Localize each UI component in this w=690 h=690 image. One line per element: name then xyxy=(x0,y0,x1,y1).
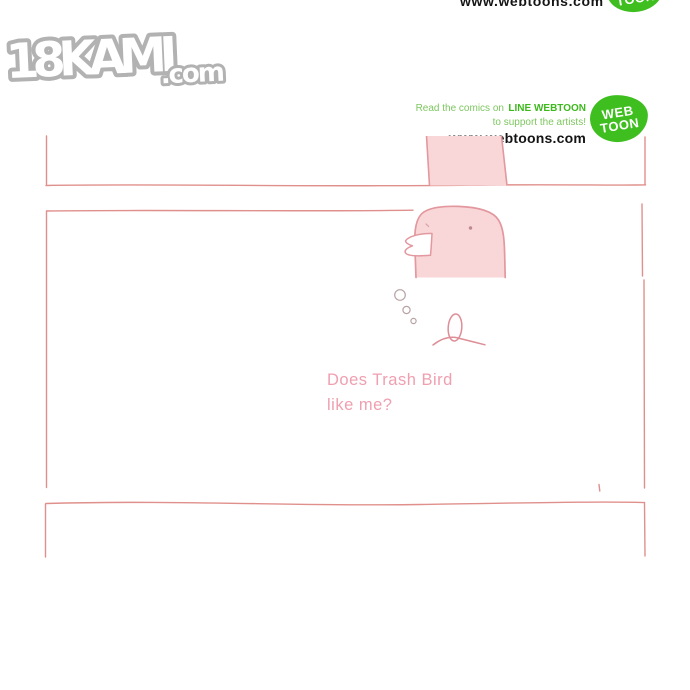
bird-beak xyxy=(405,233,432,255)
thought-bubble-large xyxy=(395,290,406,301)
thought-caption: Does Trash Bird like me? xyxy=(327,368,453,418)
plant-sprout-drawing xyxy=(433,314,485,345)
sprout-mound xyxy=(433,337,485,345)
trash-bird-drawing xyxy=(405,206,505,277)
panel-1-borders xyxy=(46,136,646,186)
bird-body-panel1 xyxy=(427,136,508,186)
caption-line-1: Does Trash Bird xyxy=(327,368,453,393)
caption-line-2: like me? xyxy=(327,393,453,418)
thought-bubble-small xyxy=(411,318,416,323)
bird-eye xyxy=(469,226,472,229)
webtoon-page: www.webtoons.com WEB TOON 18KAMI .com Re… xyxy=(0,0,690,690)
thought-bubble-medium xyxy=(403,306,410,313)
thought-bubbles xyxy=(395,290,416,324)
panel-3-borders xyxy=(46,502,646,557)
comic-panels xyxy=(0,0,690,690)
panel-2-borders xyxy=(47,204,645,491)
pillar-fill xyxy=(427,136,508,186)
